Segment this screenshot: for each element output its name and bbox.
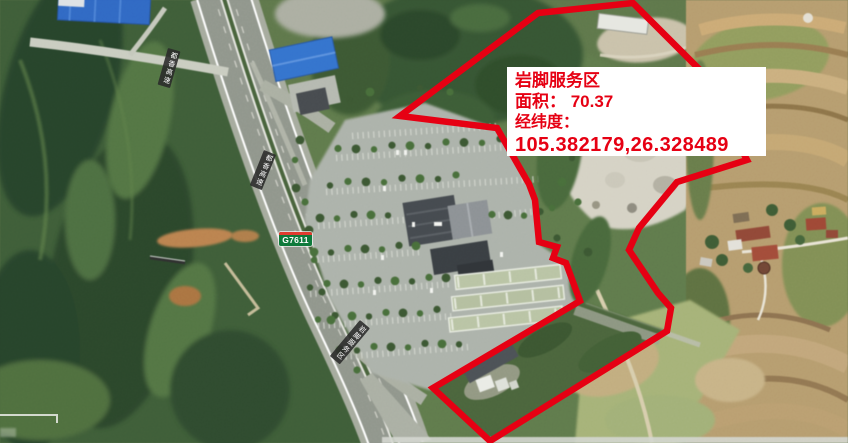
satellite-map[interactable]: 岩脚服务区 面积： 70.37 经纬度： 105.382179,26.32848… [0, 0, 848, 443]
region-title: 岩脚服务区 [515, 70, 766, 91]
map-scale-bar [0, 414, 58, 423]
highway-shield-g7611: G7611 [279, 232, 312, 246]
region-coordinates: 105.382179,26.328489 [515, 133, 766, 157]
region-info-box: 岩脚服务区 面积： 70.37 经纬度： 105.382179,26.32848… [507, 67, 766, 156]
region-area: 面积： 70.37 [515, 91, 766, 112]
region-coord-heading: 经纬度： [515, 112, 766, 133]
shield-red-stripe [279, 232, 312, 235]
scale-text-clipped [0, 428, 16, 437]
shield-number: G7611 [279, 235, 312, 246]
